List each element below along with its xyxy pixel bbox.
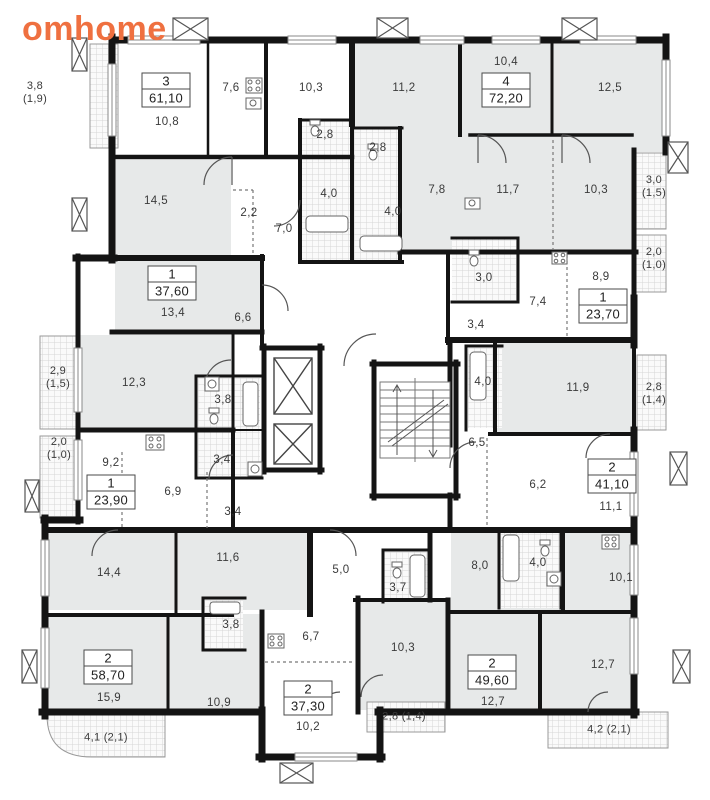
balcony-area-label: 3,0(1,5) [642, 174, 666, 200]
room-area-label: 4,0 [529, 557, 546, 569]
apartment-badge[interactable]: 1 23,70 [579, 289, 628, 324]
toilet-icon [392, 562, 402, 578]
apartment-total-area: 23,70 [580, 306, 627, 323]
room-area-label: 6,2 [529, 479, 546, 491]
balcony-area-label: 4,2 (2,1) [587, 724, 631, 737]
washing-machine-icon [205, 377, 219, 391]
room-area-label: 4,0 [320, 188, 337, 200]
apartment-badge[interactable]: 2 37,30 [284, 681, 333, 716]
sink-icon [465, 198, 480, 209]
bathtub-icon [410, 555, 425, 597]
room-area-label: 3,0 [475, 272, 492, 284]
room-area-label: 6,7 [302, 631, 319, 643]
room-area-label: 10,9 [207, 697, 231, 709]
washing-machine-icon [248, 462, 262, 476]
room-area-label: 13,4 [161, 307, 185, 319]
bathtub-icon [306, 216, 348, 232]
room-area-label: 6,9 [164, 486, 181, 498]
stove-icon [602, 535, 619, 549]
apartment-rooms-count: 3 [143, 74, 190, 90]
room-area-label: 2,2 [240, 207, 257, 219]
apartment-badge[interactable]: 1 37,60 [148, 266, 197, 301]
room-area-label: 4,0 [384, 206, 401, 218]
apartment-rooms-count: 1 [580, 290, 627, 306]
apartment-total-area: 58,70 [85, 667, 132, 684]
room-area-label: 10,8 [155, 116, 179, 128]
room-area-label: 12,7 [481, 696, 505, 708]
room-area-label: 3,8 [214, 394, 231, 406]
room-area-label: 10,3 [391, 642, 415, 654]
room-area-label: 7,4 [529, 296, 546, 308]
room-area-label: 14,4 [97, 567, 121, 579]
bathtub-icon [503, 535, 519, 581]
room-area-label: 3,4 [224, 506, 241, 518]
bathtub-icon [243, 382, 258, 426]
apartment-total-area: 49,60 [469, 672, 516, 689]
room-area-label: 2,8 [369, 142, 386, 154]
room-area-label: 11,6 [216, 552, 239, 564]
room-area-label: 9,2 [102, 457, 119, 469]
apartment-badge[interactable]: 1 23,90 [87, 475, 136, 510]
apartment-rooms-count: 2 [85, 651, 132, 667]
balcony-area-label: 2,8 (1,4) [382, 711, 426, 724]
elevator-shaft-2 [274, 424, 312, 464]
apartment-badge[interactable]: 2 41,10 [588, 459, 637, 494]
balcony-area-label: 2,8(1,4) [642, 381, 666, 407]
stove-icon [268, 634, 284, 648]
stove-icon [552, 252, 567, 264]
apartment-badge[interactable]: 3 61,10 [142, 73, 191, 108]
room-area-label: 10,3 [584, 184, 608, 196]
room-area-label: 3,4 [213, 454, 230, 466]
room-area-label: 4,0 [474, 376, 491, 388]
apartment-total-area: 23,90 [88, 492, 135, 509]
balcony-area-label: 3,8(1,9) [23, 80, 47, 106]
room-area-label: 11,2 [392, 82, 415, 94]
elevator-shaft-1 [274, 358, 312, 414]
apartment-rooms-count: 2 [469, 656, 516, 672]
brand-logo[interactable]: omhome [22, 10, 167, 49]
room-area-label: 8,9 [592, 271, 609, 283]
room-area-label: 7,8 [428, 184, 445, 196]
room-area-label: 10,2 [296, 721, 320, 733]
apartment-rooms-count: 4 [483, 74, 530, 90]
stove-icon [146, 435, 164, 450]
stairwell [380, 378, 450, 462]
bathtub-icon [210, 602, 240, 614]
apartment-total-area: 37,60 [149, 283, 196, 300]
room-area-label: 3,4 [467, 319, 484, 331]
apartment-rooms-count: 1 [149, 267, 196, 283]
room-area-label: 10,1 [609, 572, 633, 584]
balcony-area-label: 2,9(1,5) [46, 365, 70, 391]
room-area-label: 6,5 [468, 437, 485, 449]
room-area-label: 7,6 [222, 82, 239, 94]
room-area-label: 5,0 [332, 564, 349, 576]
apartment-rooms-count: 1 [88, 476, 135, 492]
room-area-label: 12,5 [598, 82, 622, 94]
stove-icon [246, 78, 262, 93]
balcony-area-label: 2,0(1,0) [47, 436, 71, 462]
floor-plan: omhome 10,8 7,6 10,3 11,2 10,4 12,5 14,5… [0, 0, 710, 800]
sink-icon [246, 98, 261, 109]
room-area-label: 7,0 [275, 223, 292, 235]
balcony-area-label: 2,0(1,0) [642, 246, 666, 272]
bathtub-icon [360, 236, 402, 251]
room-area-label: 12,3 [122, 377, 146, 389]
apartment-badge[interactable]: 2 58,70 [84, 650, 133, 685]
apartment-total-area: 61,10 [143, 90, 190, 107]
room-area-label: 2,8 [316, 129, 333, 141]
apartment-badge[interactable]: 2 49,60 [468, 655, 517, 690]
apartment-total-area: 72,20 [483, 90, 530, 107]
room-area-label: 3,7 [389, 582, 406, 594]
apartment-badge[interactable]: 4 72,20 [482, 73, 531, 108]
room-area-label: 14,5 [144, 195, 168, 207]
room-area-label: 3,8 [222, 619, 239, 631]
apartment-total-area: 37,30 [285, 698, 332, 715]
balcony-area-label: 4,1 (2,1) [84, 732, 128, 745]
apartment-rooms-count: 2 [285, 682, 332, 698]
apartment-rooms-count: 2 [589, 460, 636, 476]
room-area-label: 11,7 [496, 184, 519, 196]
room-area-label: 10,4 [494, 56, 518, 68]
toilet-icon [540, 540, 550, 556]
toilet-icon [469, 250, 479, 266]
apartment-total-area: 41,10 [589, 476, 636, 493]
room-area-label: 8,0 [471, 560, 488, 572]
room-area-label: 11,9 [566, 382, 589, 394]
room-area-label: 12,7 [591, 659, 615, 671]
toilet-icon [209, 408, 219, 424]
washing-machine-icon [547, 572, 561, 586]
elevator-shafts [274, 358, 312, 464]
room-area-label: 15,9 [97, 692, 121, 704]
room-area-label: 6,6 [234, 312, 251, 324]
room-area-label: 10,3 [299, 82, 323, 94]
room-area-label: 11,1 [599, 501, 622, 513]
